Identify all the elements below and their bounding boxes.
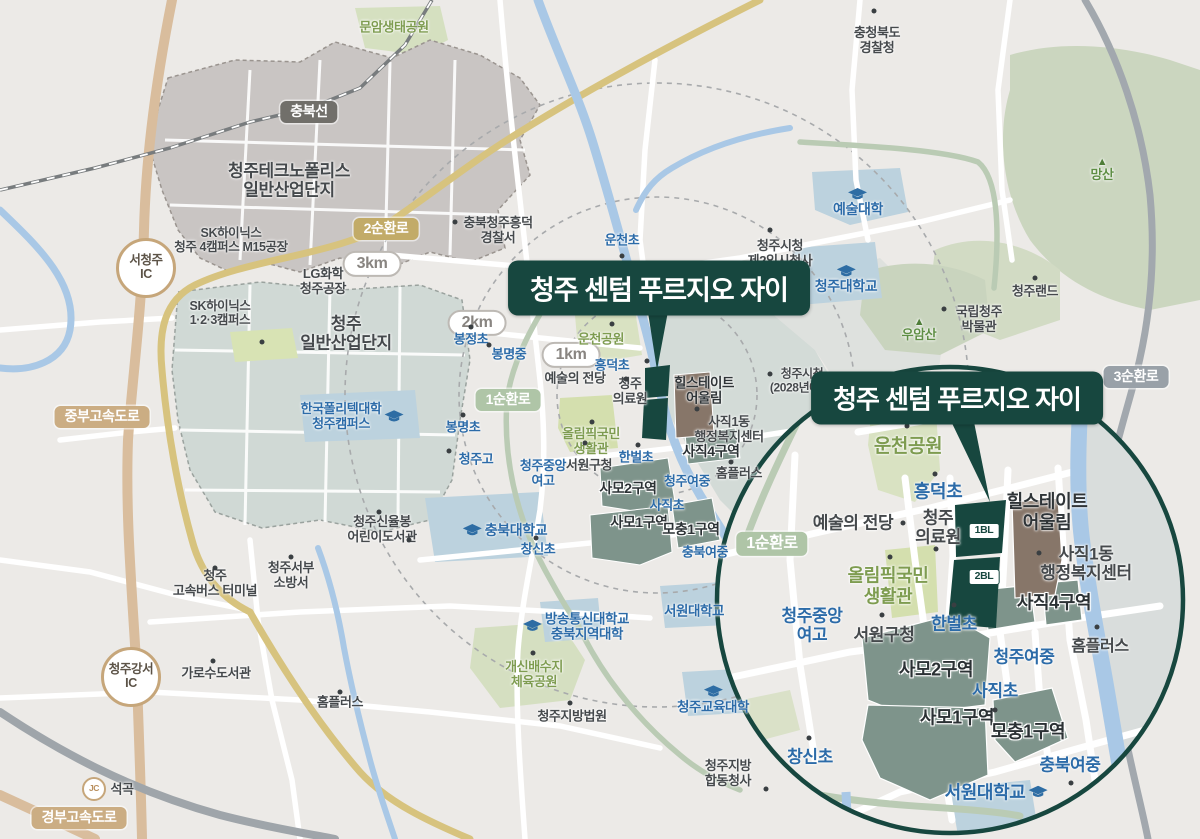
seokgok: 석곡 [110, 783, 133, 798]
poi-dot [213, 566, 218, 571]
poi-dot [568, 701, 573, 706]
km3-badge: 3km [343, 251, 402, 277]
inset-sajik1-welfare-center: 사직1동행정복지센터 [1040, 545, 1131, 584]
gangseo-ic: 청주강서IC [101, 647, 161, 707]
poi-dot [453, 220, 458, 225]
poi-dot [338, 690, 343, 695]
sajik-elementary: 사직초 [650, 499, 685, 514]
express-bus-terminal: 청주고속버스 터미널 [173, 569, 257, 599]
mochung1-zone: 모충1구역 [662, 522, 719, 538]
poi-dot [695, 407, 700, 412]
uamsan-mountain: ▲우암산 [902, 317, 937, 343]
poi-dot [407, 538, 412, 543]
ring3-road-badge: 3순환로 [1104, 366, 1169, 388]
poi-dot [729, 460, 734, 465]
poi-dot [620, 254, 625, 259]
seobu-fire-station: 청주서부소방서 [268, 561, 314, 591]
poi-dot [461, 413, 466, 418]
inset-sajik-elementary: 사직초 [972, 681, 1018, 700]
poi-dot [1037, 551, 1042, 556]
chungbuk-girls-middle: 충북여중 [682, 546, 728, 561]
poi-dot [636, 443, 641, 448]
poi-dot [952, 603, 957, 608]
inset-mochung1-zone: 모충1구역 [991, 722, 1065, 743]
garosu-library: 가로수도서관 [181, 667, 250, 682]
inset-heungdeok-elementary: 흥덕초 [914, 482, 962, 503]
poi-dot [1069, 781, 1074, 786]
jungbu-expressway-badge: 중부고속도로 [55, 406, 150, 428]
uncheon-park: 운천공원 [578, 333, 624, 348]
poi-dot [583, 441, 588, 446]
gyeongbu-expressway-badge: 경부고속도로 [32, 807, 127, 829]
heungdeok-police: 충북청주흥덕경찰서 [463, 216, 532, 246]
homeplus: 홈플러스 [716, 467, 762, 482]
inset-arts-center: 예술의 전당 [813, 513, 894, 532]
poi-dot [880, 613, 885, 618]
hillstate-eoullim: 힐스테이트어울림 [674, 376, 734, 407]
poi-dot [764, 787, 769, 792]
university-cap-icon [463, 524, 482, 538]
poi-dot [872, 9, 877, 14]
education-university: 청주교육대학 [677, 685, 749, 714]
university-cap-icon [1028, 786, 1047, 800]
poi-dot [211, 659, 216, 664]
inset-ring1-road-badge: 1순환로 [736, 532, 807, 556]
location-map: 문암생태공원충청북도경찰청충북선청주테크노폴리스일반산업단지SK하이닉스청주 4… [0, 0, 1200, 839]
cheongju-land: 청주랜드 [1012, 285, 1058, 300]
project-title-inset: 청주 센텀 푸르지오 자이 [811, 372, 1103, 425]
ring1-road-badge: 1순환로 [476, 389, 541, 411]
poi-dot [377, 510, 382, 515]
inset-cheongju-girls-middle: 청주여중 [994, 647, 1055, 666]
sk-hynix-m15: SK하이닉스청주 4캠퍼스 M15공장 [174, 226, 288, 255]
poi-dot [645, 359, 650, 364]
poi-dot [487, 343, 492, 348]
seowon-district-office: 서원구청 [566, 459, 612, 474]
korea-polytech: 한국폴리텍대학청주캠퍼스 [301, 402, 404, 432]
poi-dot [933, 472, 938, 477]
chungbuk-provincial-police: 충청북도경찰청 [854, 26, 900, 56]
poi-dot [469, 325, 474, 330]
arts-college: 예술대학 [833, 188, 883, 218]
inset-cheongju-medical: 청주의료원 [915, 509, 961, 548]
lg-chem-plant: LG화학청주공장 [300, 267, 346, 297]
inset-sajik4-zone: 사직4구역 [1017, 593, 1091, 614]
poi-dot [1033, 276, 1038, 281]
sk-hynix-campus123: SK하이닉스1·2·3캠퍼스 [190, 299, 251, 328]
gov-joint-complex: 청주지방합동청사 [705, 759, 751, 789]
university-cap-icon [384, 410, 403, 424]
homeplus-west: 홈플러스 [317, 696, 363, 711]
bongmyeong-elementary: 봉명초 [446, 421, 481, 436]
inset-chungbuk-girls-middle: 충북여중 [1040, 755, 1101, 774]
bongmyeong-middle: 봉명중 [492, 348, 527, 363]
block1-badge: 1BL [969, 523, 1000, 539]
jungang-girls-high: 청주중앙여고 [520, 459, 566, 489]
poi-dot [624, 377, 629, 382]
seocheongju-ic: 서청주IC [116, 238, 176, 298]
ring2-road-badge: 2순환로 [354, 218, 419, 240]
inset-seowon-district-office: 서원구청 [854, 625, 915, 644]
technopolis: 청주테크노폴리스일반산업단지 [228, 162, 350, 201]
poi-dot [993, 708, 998, 713]
inset-jungang-girls-high: 청주중앙여고 [782, 607, 843, 646]
poi-dot [807, 736, 812, 741]
seowon-university: 서원대학교 [664, 603, 724, 618]
seokgok-jc: JC [82, 777, 106, 801]
cheongju-university: 청주대학교 [815, 265, 877, 295]
poi-dot [768, 372, 773, 377]
poi-dot [934, 547, 939, 552]
arts-center: 예술의 전당 [544, 372, 605, 387]
munam-eco-park: 문암생태공원 [359, 21, 428, 36]
changsin-elementary: 창신초 [521, 543, 556, 558]
poi-dot [447, 449, 452, 454]
poi-dot [590, 420, 595, 425]
gaesin-sports-park: 개신배수지체육공원 [505, 660, 563, 690]
sajik1-welfare-center: 사직1동행정복지센터 [694, 415, 763, 445]
university-cap-icon [815, 265, 877, 278]
sajik4-zone: 사직4구역 [682, 444, 739, 460]
cheongju-medical-center: 청주의료원 [613, 377, 648, 407]
knou-chungbuk: 방송통신대학교충북지역대학 [523, 612, 629, 643]
mangsan-mountain: ▲망산 [1090, 157, 1113, 183]
inset-uncheon-park: 운천공원 [874, 436, 942, 458]
inset-samo1-zone: 사모1구역 [920, 708, 994, 729]
poi-dot [260, 340, 265, 345]
inset-changsin-elementary: 창신초 [787, 747, 833, 766]
poi-dot [531, 651, 536, 656]
inset-hanbeol-elementary: 한벌초 [931, 614, 977, 633]
block2-badge: 2BL [969, 569, 1000, 585]
cheongju-district-court: 청주지방법원 [537, 710, 606, 725]
inset-hillstate-eoullim: 힐스테이트어울림 [1007, 491, 1088, 532]
bongjeong-elementary: 봉정초 [454, 333, 489, 348]
uncheon-elementary: 운천초 [605, 234, 640, 249]
poi-dot [901, 521, 906, 526]
university-cap-icon [523, 620, 542, 634]
poi-dot [1095, 625, 1100, 630]
cheongju-high: 청주고 [459, 453, 494, 468]
chungbuk-line-badge: 충북선 [280, 101, 337, 123]
inset-seowon-university: 서원대학교 [945, 783, 1048, 804]
inset-homeplus: 홈플러스 [1071, 638, 1128, 656]
inset-olympic-center: 올림픽국민생활관 [848, 565, 929, 606]
cheongju-girls-middle: 청주여중 [664, 475, 710, 490]
samo2-zone: 사모2구역 [599, 481, 656, 497]
poi-dot [534, 536, 539, 541]
poi-dot [289, 555, 294, 560]
cheongju-industrial-complex: 청주일반산업단지 [300, 315, 391, 354]
poi-dot [942, 307, 947, 312]
project-title-main: 청주 센텀 푸르지오 자이 [508, 261, 810, 316]
poi-dot [768, 228, 773, 233]
samo1-zone: 사모1구역 [610, 515, 667, 531]
university-cap-icon [677, 685, 749, 698]
national-cheongju-museum: 국립청주박물관 [956, 305, 1002, 335]
olympic-center: 올림픽국민생활관 [562, 427, 620, 457]
poi-dot [888, 555, 893, 560]
hanbeol-elementary: 한벌초 [619, 451, 654, 466]
university-cap-icon [833, 188, 883, 201]
inset-samo2-zone: 사모2구역 [899, 660, 973, 681]
poi-dot [610, 322, 615, 327]
